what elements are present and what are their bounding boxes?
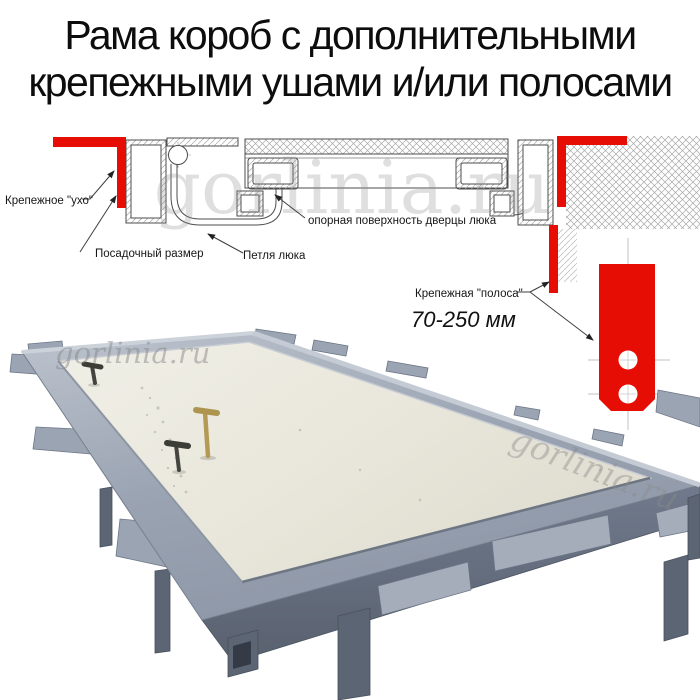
product-image: Рама короб с дополнительными крепежными … (0, 0, 700, 700)
watermark-photo-left: gorlinia.ru (55, 336, 210, 370)
label-seat-size: Посадочный размер (95, 248, 204, 260)
t-key-brass (205, 412, 208, 456)
label-hatch-hinge: Петля люка (243, 250, 306, 262)
product-photo: gorlinia.ru gorlinia.ru (10, 329, 700, 700)
title-line1: Рама короб с дополнительными (0, 12, 700, 59)
mounting-strip-red-diagram (549, 225, 558, 293)
label-mounting-ear: Крепежное "ухо" (5, 195, 93, 207)
title-line2: крепежными ушами и/или полосами (0, 59, 700, 106)
label-strip-size: 70-250 мм (411, 307, 516, 332)
label-mounting-strip: Крепежная "полоса" (415, 288, 523, 300)
label-door-support-surface: опорная поверхность дверцы люка (308, 215, 497, 227)
page-title: Рама короб с дополнительными крепежными … (0, 12, 700, 106)
technical-drawing-and-photo: gorlinia.ru (0, 110, 700, 700)
